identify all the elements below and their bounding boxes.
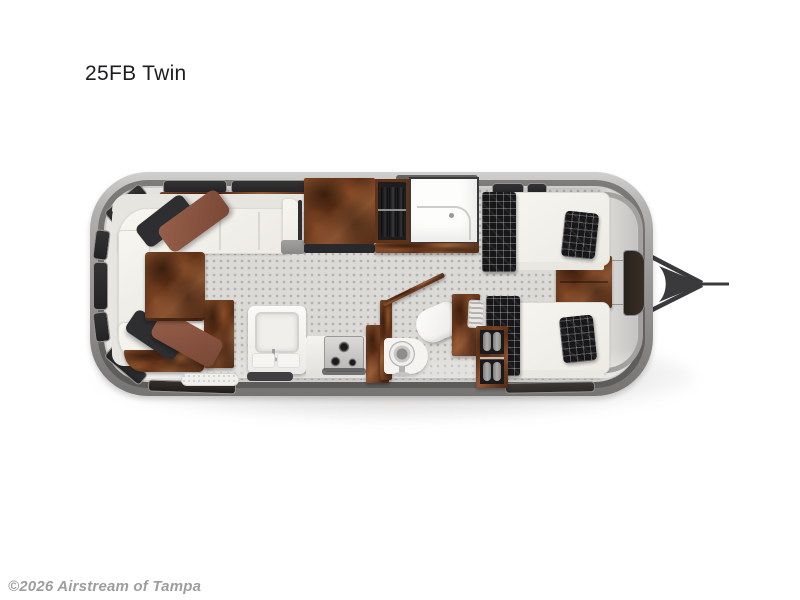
burner [330,356,341,367]
towel-roll [483,362,491,381]
hanging-clothes [381,187,388,237]
plaid-runner-icon [482,192,516,272]
drawer-front [252,353,275,368]
cushion-seam [258,212,260,250]
burner [338,341,350,353]
floor-mat-icon [322,368,366,375]
drawer-line [560,281,608,283]
hanging-clothes [389,187,396,237]
closet-rod [378,209,406,211]
pedestal-foot [394,372,410,377]
window-icon [623,250,645,316]
window-icon [505,381,595,394]
floorplan-page: 25FB Twin [0,0,800,600]
plaid-pillow-icon [559,314,598,363]
floor-mat-icon [247,372,293,381]
galley-sink-icon [255,312,299,353]
towel-roll [493,362,501,381]
towel-roll [483,332,491,351]
dealer-watermark: ©2026 Airstream of Tampa [8,578,201,595]
cabinet-front [375,243,479,253]
towel-ladder [467,300,484,329]
wardrobe-front [304,244,375,253]
entry-step-icon [181,373,239,386]
shower-icon [409,177,479,244]
shower-pan-line [417,206,471,240]
drawer-front [277,353,300,368]
shelf-rail [480,357,504,359]
cooktop-icon [324,336,364,372]
dinette-table-icon [145,252,205,321]
towel-roll [493,332,501,351]
burner [348,358,357,367]
shelf-cubby [480,330,504,354]
shelf-cubby [480,360,504,384]
tow-hitch-icon [640,240,740,330]
model-title: 25FB Twin [85,62,187,86]
bench-vent [281,240,305,254]
plaid-pillow-icon [561,210,600,259]
shower-drain [449,213,454,218]
wardrobe-icon [304,178,375,244]
window-icon [93,262,108,310]
vanity-pedestal-icon [389,341,415,367]
storage-shelf-icon [476,326,508,388]
hanging-clothes [397,187,404,237]
hanging-closet-icon [375,179,409,243]
